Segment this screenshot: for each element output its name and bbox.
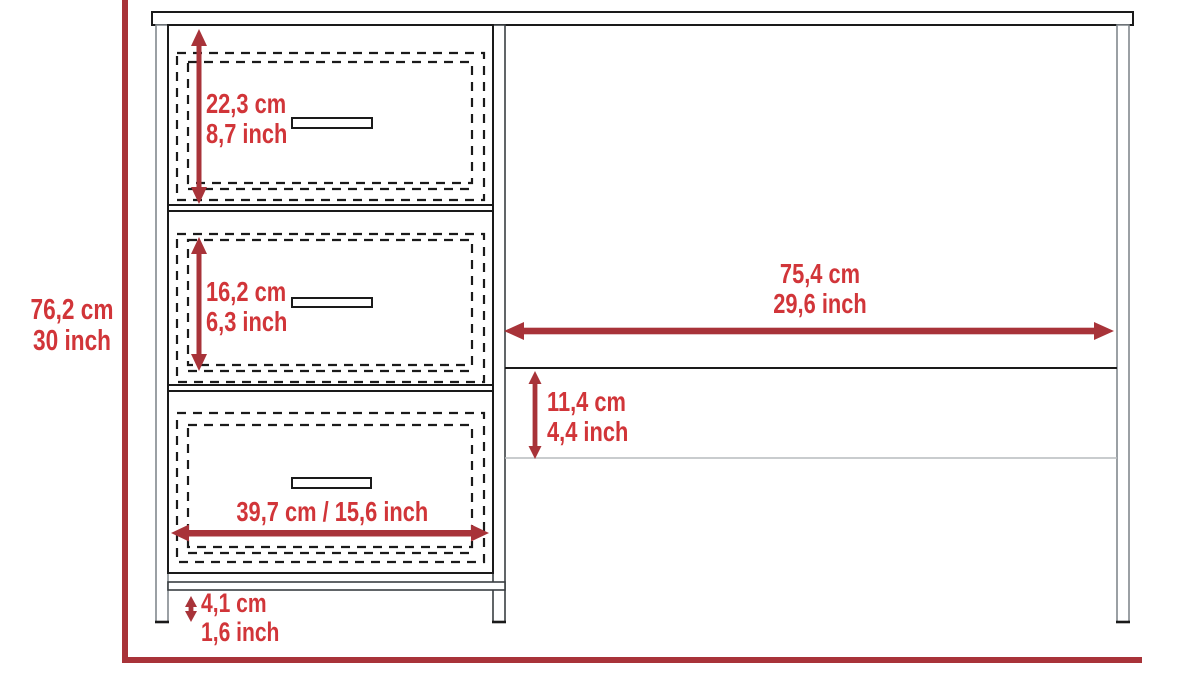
arrow-left-icon: [504, 322, 524, 340]
worktop-width-label: 75,4 cm 29,6 inch: [700, 259, 940, 318]
worktop-width-cm: 75,4 cm: [726, 259, 913, 289]
bottom-rail-gap-label: 4,1 cm 1,6 inch: [201, 589, 302, 646]
arrow-down-icon: [185, 611, 197, 622]
knee-clearance-label: 11,4 cm 4,4 inch: [547, 387, 651, 446]
dim-arrow-bottom-rail-gap: [185, 596, 197, 622]
middle-drawer-inch: 6,3 inch: [206, 307, 287, 337]
middle-leg: [493, 25, 505, 622]
bottom-rail-gap-inch: 1,6 inch: [201, 618, 279, 647]
drawer-separator-1: [168, 205, 493, 211]
knee-clearance-inch: 4,4 inch: [547, 417, 628, 447]
top-drawer-height-label: 22,3 cm 8,7 inch: [206, 89, 310, 148]
bottom-rail-gap-cm: 4,1 cm: [201, 589, 279, 618]
top-drawer-cm: 22,3 cm: [206, 89, 287, 119]
arrow-down-icon: [529, 446, 542, 459]
dim-arrow-worktop-width: [504, 322, 1114, 340]
left-leg: [156, 25, 168, 622]
total-height-cm: 76,2 cm: [25, 295, 119, 326]
dim-arrow-knee-clearance: [529, 371, 542, 459]
drawer-width-label: 39,7 cm / 15,6 inch: [210, 497, 450, 527]
drawer-separator-2: [168, 385, 493, 391]
arrow-up-icon: [185, 596, 197, 607]
top-drawer-inch: 8,7 inch: [206, 119, 287, 149]
arrow-up-icon: [529, 371, 542, 384]
drawer-width-text: 39,7 cm / 15,6 inch: [236, 497, 423, 527]
right-leg: [1117, 25, 1129, 622]
total-height-label: 76,2 cm 30 inch: [12, 295, 132, 356]
floor-dim-horizontal-line: [122, 657, 1142, 663]
desk-top: [152, 12, 1133, 25]
knee-clearance-cm: 11,4 cm: [547, 387, 628, 417]
drawer-3-handle: [292, 478, 371, 488]
total-height-inch: 30 inch: [25, 326, 119, 357]
desk-dimension-diagram: 76,2 cm 30 inch 22,3 cm 8,7 inch 16,2 cm…: [0, 0, 1200, 675]
middle-drawer-cm: 16,2 cm: [206, 277, 287, 307]
middle-drawer-height-label: 16,2 cm 6,3 inch: [206, 277, 310, 336]
arrow-right-icon: [1094, 322, 1114, 340]
desk-line-art: [0, 0, 1200, 675]
worktop-width-inch: 29,6 inch: [726, 289, 913, 319]
